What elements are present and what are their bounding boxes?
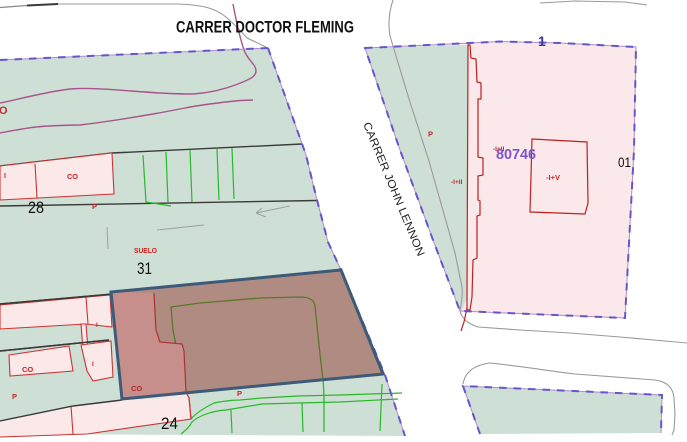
svg-text:P: P — [237, 389, 242, 398]
svg-text:28: 28 — [28, 198, 44, 217]
svg-text:P: P — [12, 392, 17, 401]
svg-text:CO: CO — [22, 365, 33, 374]
svg-text:-I+V: -I+V — [546, 173, 560, 182]
svg-text:I: I — [96, 322, 98, 329]
svg-text:P: P — [428, 130, 433, 139]
svg-text:I: I — [92, 361, 94, 368]
svg-text:O: O — [0, 105, 8, 117]
svg-text:01: 01 — [618, 154, 631, 170]
svg-text:-I+II: -I+II — [451, 179, 463, 186]
svg-text:SUELO: SUELO — [134, 246, 157, 255]
svg-text:CARRER DOCTOR FLEMING: CARRER DOCTOR FLEMING — [176, 19, 354, 37]
svg-text:CO: CO — [67, 174, 79, 181]
svg-text:I: I — [4, 173, 6, 180]
svg-text:P: P — [92, 202, 97, 211]
svg-text:1: 1 — [538, 33, 546, 49]
svg-text:31: 31 — [137, 259, 152, 278]
svg-text:24: 24 — [161, 414, 178, 433]
svg-text:80746: 80746 — [496, 146, 536, 163]
